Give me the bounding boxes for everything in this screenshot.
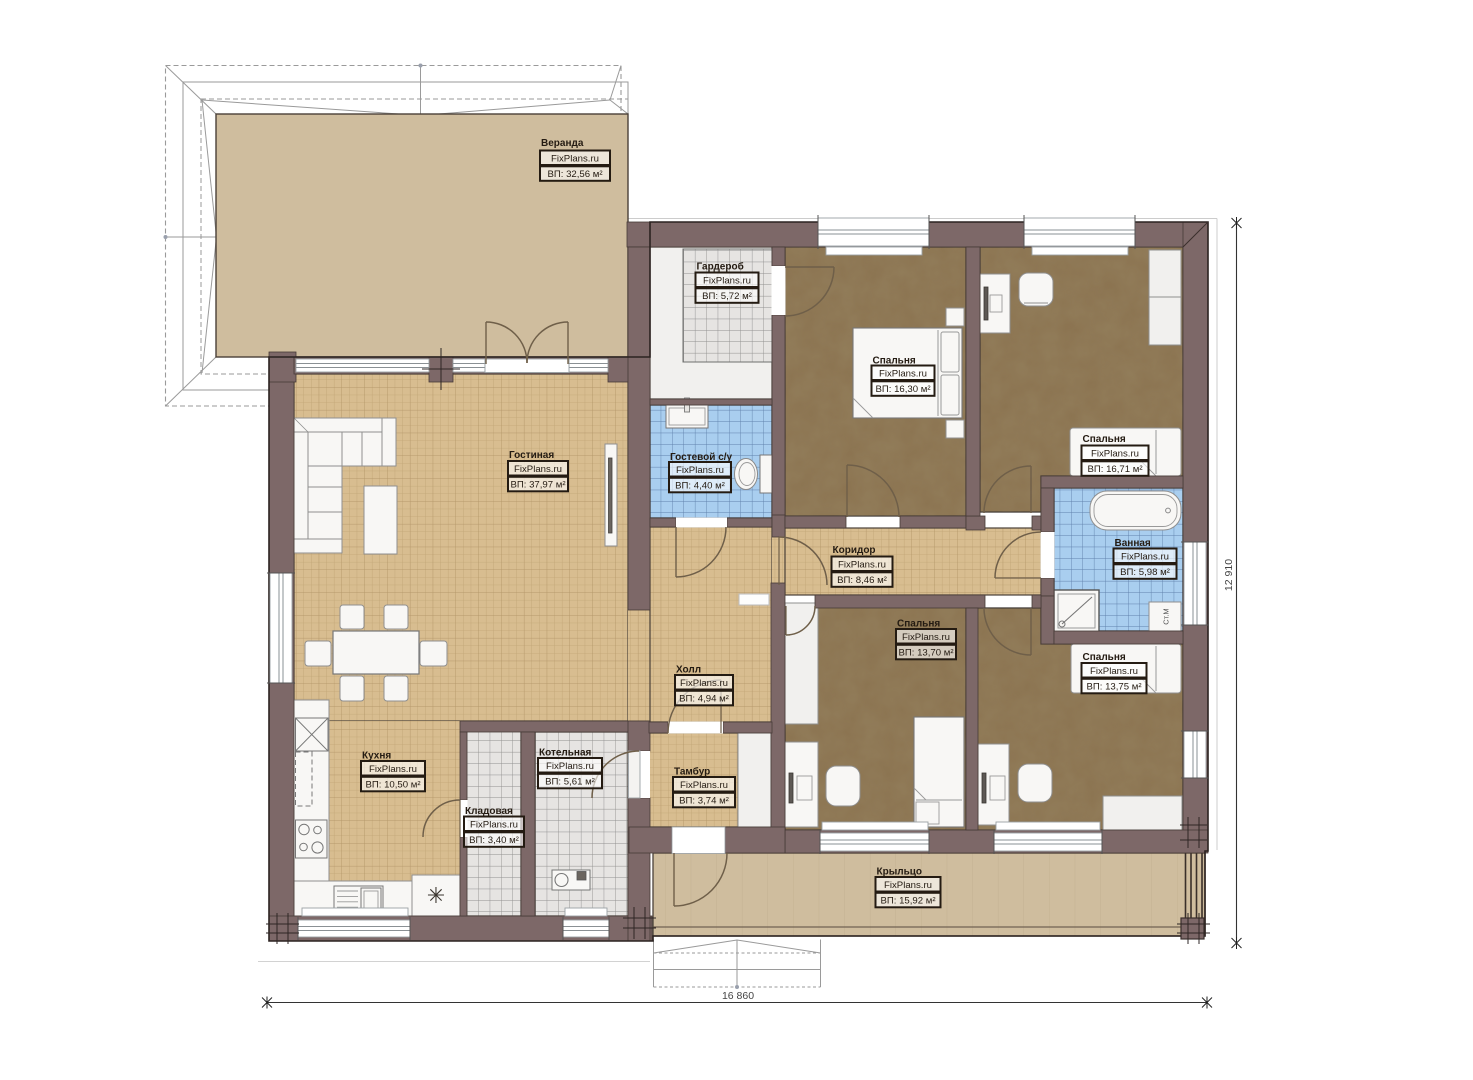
svg-text:Крыльцо: Крыльцо — [877, 867, 923, 878]
svg-text:Гардероб: Гардероб — [697, 261, 744, 273]
svg-text:Спальня: Спальня — [1083, 434, 1126, 445]
svg-text:Гостиная: Гостиная — [509, 450, 554, 461]
svg-text:ВП: 16,30 м²: ВП: 16,30 м² — [875, 384, 931, 395]
svg-text:FixPlans.ru: FixPlans.ru — [884, 880, 932, 891]
svg-text:ВП: 5,98 м²: ВП: 5,98 м² — [1120, 567, 1171, 578]
svg-text:Ванная: Ванная — [1115, 538, 1151, 549]
svg-text:ВП: 5,72 м²: ВП: 5,72 м² — [702, 291, 753, 302]
svg-text:Холл: Холл — [676, 665, 701, 676]
svg-text:Котельная: Котельная — [539, 748, 592, 759]
svg-text:FixPlans.ru: FixPlans.ru — [676, 465, 724, 476]
svg-text:✳: ✳ — [427, 883, 445, 908]
svg-text:FixPlans.ru: FixPlans.ru — [1090, 666, 1138, 677]
svg-text:ВП: 8,46 м²: ВП: 8,46 м² — [837, 575, 888, 586]
svg-text:Кладовая: Кладовая — [465, 806, 513, 817]
svg-text:ВП: 32,56 м²: ВП: 32,56 м² — [547, 169, 603, 180]
svg-text:FixPlans.ru: FixPlans.ru — [902, 632, 950, 643]
svg-text:FixPlans.ru: FixPlans.ru — [546, 761, 594, 772]
svg-text:Спальня: Спальня — [897, 619, 940, 630]
svg-text:FixPlans.ru: FixPlans.ru — [680, 780, 728, 791]
svg-text:ВП: 3,74 м²: ВП: 3,74 м² — [679, 796, 730, 807]
svg-text:Спальня: Спальня — [1083, 652, 1126, 663]
svg-text:ВП: 37,97 м²: ВП: 37,97 м² — [510, 480, 566, 491]
svg-text:ВП: 16,71 м²: ВП: 16,71 м² — [1087, 464, 1143, 475]
svg-text:FixPlans.ru: FixPlans.ru — [680, 678, 728, 689]
svg-text:Кухня: Кухня — [362, 751, 391, 762]
svg-text:16 860: 16 860 — [722, 990, 754, 1002]
svg-text:ВП: 15,92 м²: ВП: 15,92 м² — [880, 896, 936, 907]
svg-text:FixPlans.ru: FixPlans.ru — [838, 559, 886, 570]
svg-text:FixPlans.ru: FixPlans.ru — [703, 275, 751, 286]
svg-text:ВП: 4,94 м²: ВП: 4,94 м² — [679, 694, 730, 705]
svg-text:FixPlans.ru: FixPlans.ru — [514, 464, 562, 475]
svg-text:FixPlans.ru: FixPlans.ru — [551, 153, 599, 164]
svg-text:FixPlans.ru: FixPlans.ru — [470, 819, 518, 830]
svg-text:FixPlans.ru: FixPlans.ru — [369, 764, 417, 775]
svg-text:ВП: 10,50 м²: ВП: 10,50 м² — [365, 780, 421, 791]
svg-text:FixPlans.ru: FixPlans.ru — [1121, 551, 1169, 562]
svg-text:ВП: 5,61 м²: ВП: 5,61 м² — [545, 777, 596, 788]
svg-text:FixPlans.ru: FixPlans.ru — [879, 368, 927, 379]
svg-text:Веранда: Веранда — [541, 138, 584, 149]
svg-text:Ст.М: Ст.М — [1162, 608, 1171, 624]
svg-text:12 910: 12 910 — [1223, 559, 1235, 591]
svg-text:FixPlans.ru: FixPlans.ru — [1091, 448, 1139, 459]
svg-text:ВП: 13,70 м²: ВП: 13,70 м² — [898, 648, 954, 659]
svg-text:Тамбур: Тамбур — [674, 766, 710, 778]
svg-text:ВП: 3,40 м²: ВП: 3,40 м² — [469, 835, 520, 846]
svg-text:ВП: 13,75 м²: ВП: 13,75 м² — [1086, 682, 1142, 693]
svg-text:Коридор: Коридор — [833, 545, 876, 556]
svg-text:ВП: 4,40 м²: ВП: 4,40 м² — [675, 481, 726, 492]
